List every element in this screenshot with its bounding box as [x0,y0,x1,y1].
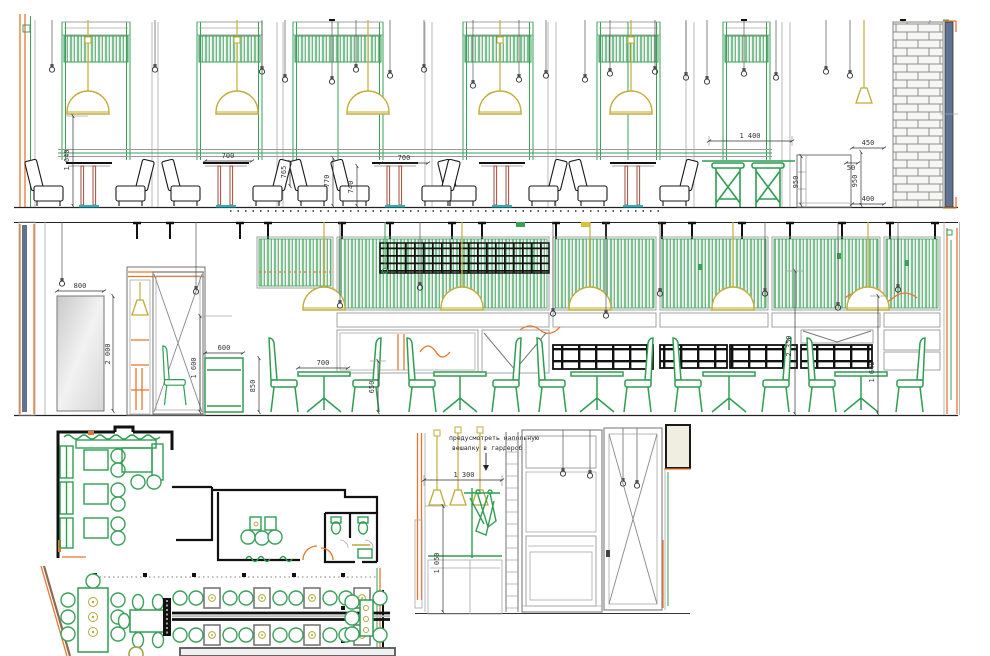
dim-cabinet-width: 600 [218,344,231,352]
window-edge-left [19,222,45,415]
booth-seating [25,159,699,207]
bar-stool [712,163,744,207]
bar-counter-plan [180,648,395,656]
note-line-2: вешалку в гардероб [452,444,523,452]
dim-booth-height: 1 640 [63,149,71,170]
right-wall-edge [944,222,960,415]
dim-1600: 1 600 [190,357,198,378]
drawing-canvas: 1 640 700 765 770 740 700 1 400 450 50 9… [0,0,990,656]
floor-plan [41,427,395,656]
square-table-group [119,595,167,648]
wall-section [666,425,690,468]
dim-seat-770: 770 [323,175,331,188]
dim-400: 400 [862,195,875,203]
top-elevation: 1 640 700 765 770 740 700 1 400 450 50 9… [14,14,958,211]
ladder-strip [506,432,518,612]
bar-counter [797,155,851,207]
dim-bar-width: 1 400 [739,132,760,140]
plan-lamp-circle [129,647,143,656]
coat-wave-line [64,435,160,439]
green-cabinet [205,358,243,412]
bar-stool [752,163,784,207]
hanging-bulb-lamps [560,428,639,488]
dim-chair-height: 650 [368,381,376,394]
dim-2350: 2 350 [785,335,793,356]
wine-rack-grid [553,345,653,369]
dim-450: 450 [862,139,875,147]
wine-rack-grid [660,345,727,368]
dim-table-width-b: 700 [398,154,411,162]
middle-elevation: 800 2 000 600 1 600 850 700 650 2 350 1 … [14,222,960,416]
dim-table-width: 700 [317,359,330,367]
dim-mirror-height: 2 000 [104,343,112,364]
left-long-table [61,574,125,652]
dim-mirror-width: 800 [74,282,87,290]
entrance-door [127,267,205,415]
wc-block [331,517,373,558]
ceiling-hangers [133,222,939,239]
dome-pendant-lamps [67,20,872,114]
black-grid-rack [380,243,549,273]
dim-50: 50 [847,164,855,172]
dim-counter-height: 1 050 [433,552,441,573]
dim-cabinet-height: 850 [249,380,257,393]
entrance-door [604,428,662,610]
bar-zone [702,155,851,207]
kitchen-furniture [241,517,333,562]
right-table-column [345,595,373,641]
cone-pendant-lamp [132,300,148,315]
dim-1640: 1 640 [868,361,876,382]
mirror [57,296,104,411]
right-wall-edge [663,425,691,610]
dim-seat-765: 765 [280,166,288,179]
wall-edge-bar [945,22,953,207]
slat-panel-bay [197,22,262,160]
wardrobe-elevation: предусмотреть напольную вешалку в гардер… [415,425,691,614]
upper-room-furniture [60,440,163,548]
dim-950-b: 950 [851,175,859,188]
brick-wall [893,20,958,208]
dim-seat-740: 740 [347,181,355,194]
dim-table-width: 700 [222,152,235,160]
slat-panel-bay [62,22,130,160]
left-wall-edge [415,433,425,612]
cone-pendant-lamp [856,88,872,103]
door-handle [606,550,610,557]
dim-rack-width: 1 300 [453,471,474,479]
dim-950-a: 950 [792,176,800,189]
